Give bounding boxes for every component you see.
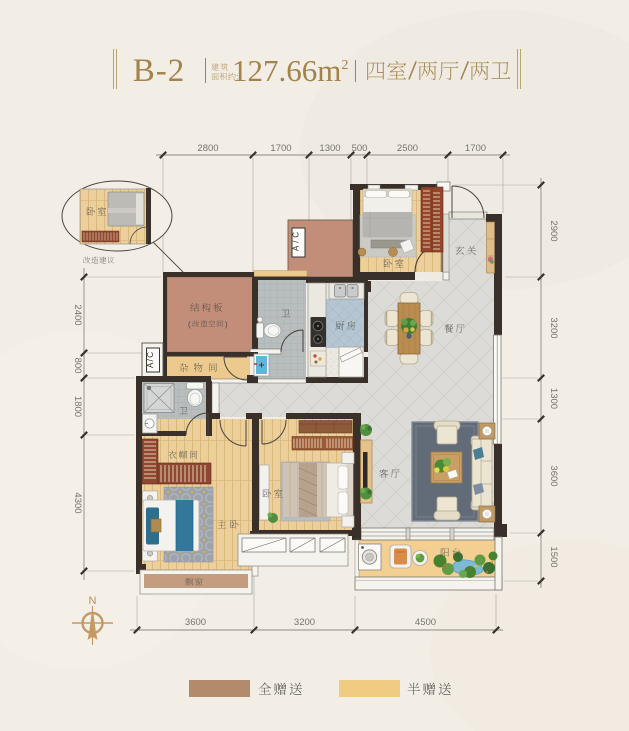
svg-text:1500: 1500 [548,546,559,567]
svg-text:127.66m2: 127.66m2 [232,53,348,88]
svg-text:800: 800 [72,358,83,374]
svg-text:2800: 2800 [197,143,218,154]
svg-text:2900: 2900 [548,220,559,241]
svg-text:A/C: A/C [292,232,301,251]
svg-text:B-2: B-2 [133,53,186,89]
svg-text:1700: 1700 [270,143,291,154]
svg-text:500: 500 [352,143,368,154]
svg-text:A/C: A/C [146,352,155,368]
svg-text:): ) [225,320,228,329]
svg-text:2500: 2500 [397,143,418,154]
svg-text:1300: 1300 [319,143,340,154]
svg-text:1800: 1800 [72,396,83,417]
svg-text:(: ( [188,320,191,329]
svg-text:4300: 4300 [72,492,83,513]
svg-text:2400: 2400 [72,304,83,325]
svg-text:3200: 3200 [294,617,315,628]
svg-text:3600: 3600 [185,617,206,628]
svg-text:N: N [89,595,97,607]
svg-text:1700: 1700 [465,143,486,154]
svg-text:3200: 3200 [548,317,559,338]
svg-text:4500: 4500 [415,617,436,628]
svg-text:3600: 3600 [548,465,559,486]
svg-text:1300: 1300 [548,388,559,409]
